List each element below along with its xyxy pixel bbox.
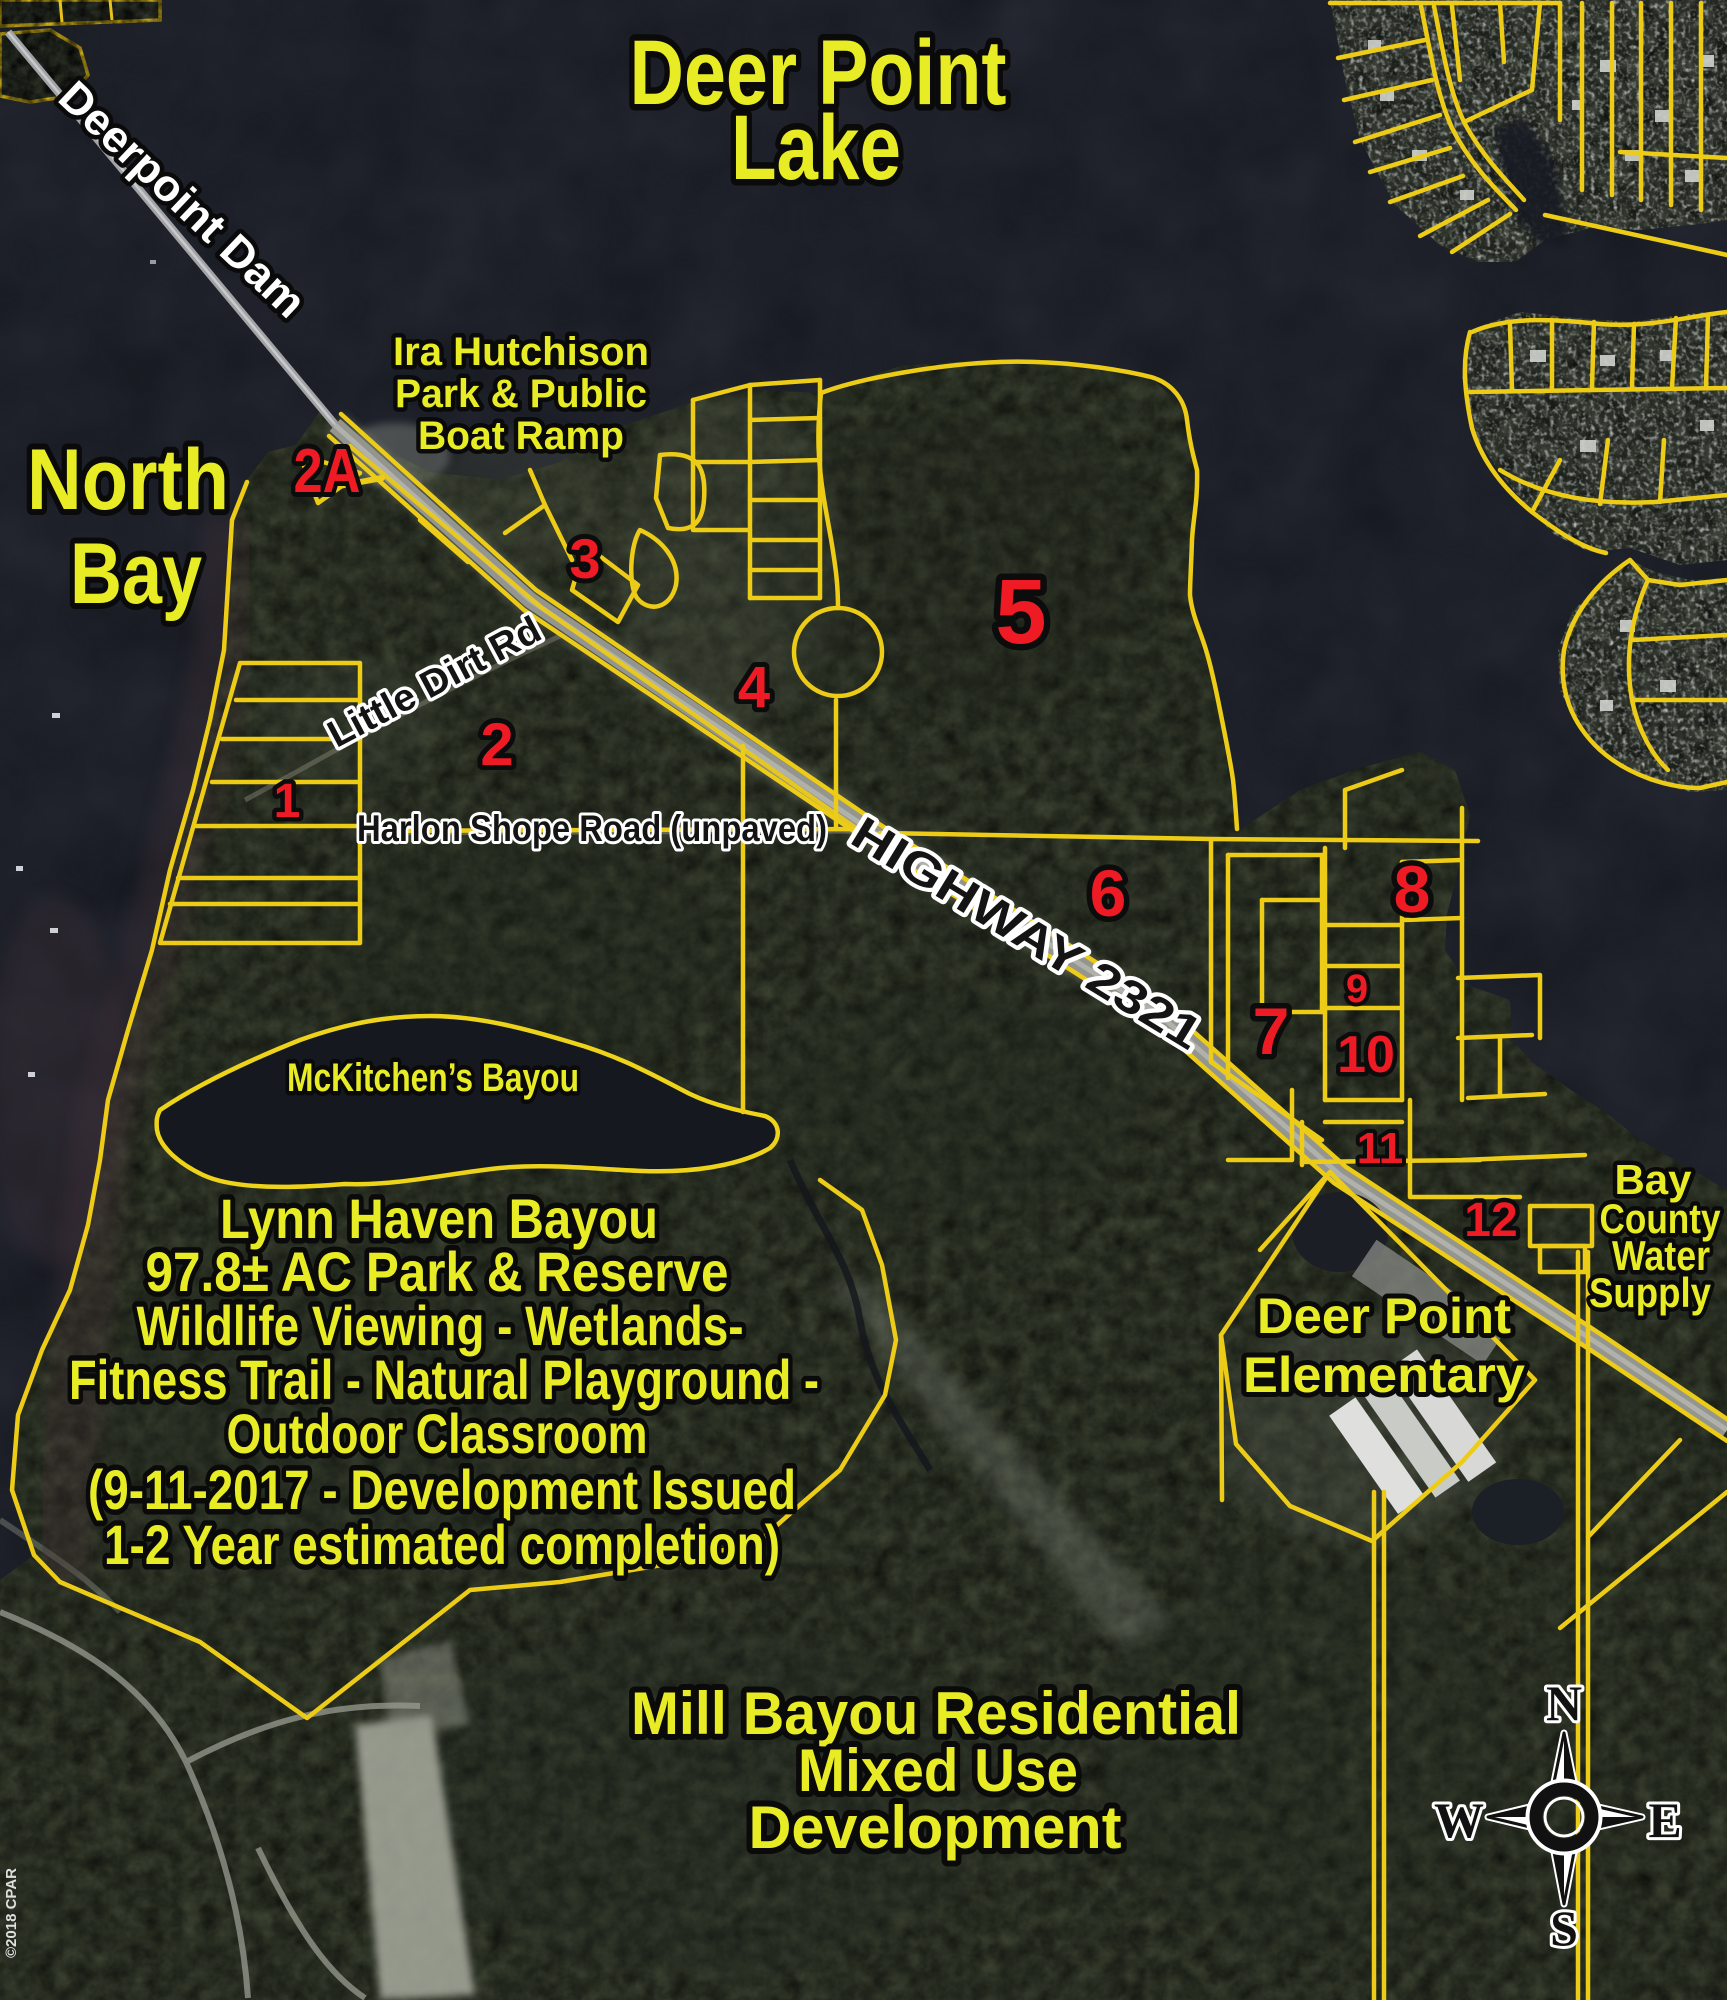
svg-text:McKitchen’s Bayou: McKitchen’s Bayou: [287, 1056, 579, 1100]
svg-text:Park & Public: Park & Public: [395, 372, 647, 416]
svg-text:Supply: Supply: [1589, 1269, 1712, 1316]
svg-text:1-2 Year estimated completion): 1-2 Year estimated completion): [104, 1513, 780, 1576]
svg-text:Outdoor Classroom: Outdoor Classroom: [227, 1402, 648, 1465]
svg-text:Elementary: Elementary: [1243, 1347, 1525, 1403]
svg-text:N: N: [1546, 1675, 1582, 1731]
svg-text:(9-11-2017 - Development Issue: (9-11-2017 - Development Issued: [88, 1458, 796, 1521]
svg-text:Bay: Bay: [70, 526, 202, 622]
svg-text:North: North: [27, 432, 229, 528]
svg-text:9: 9: [1346, 967, 1368, 1011]
svg-text:5: 5: [995, 561, 1046, 663]
svg-text:1: 1: [274, 775, 301, 828]
svg-text:©2018 CPAR: ©2018 CPAR: [3, 1868, 20, 1958]
svg-text:12: 12: [1464, 1194, 1517, 1247]
svg-text:W: W: [1434, 1792, 1484, 1848]
svg-text:Boat Ramp: Boat Ramp: [418, 414, 624, 458]
svg-text:Deer Point: Deer Point: [1257, 1288, 1511, 1344]
svg-text:3: 3: [569, 527, 600, 590]
svg-text:Ira Hutchison: Ira Hutchison: [393, 330, 649, 374]
svg-text:2A: 2A: [294, 437, 361, 506]
svg-text:Development: Development: [749, 1794, 1122, 1861]
svg-text:Harlon Shope Road (unpaved): Harlon Shope Road (unpaved): [357, 808, 827, 849]
svg-text:E: E: [1648, 1792, 1681, 1848]
svg-text:8: 8: [1394, 852, 1431, 926]
svg-text:11: 11: [1357, 1124, 1404, 1173]
svg-text:6: 6: [1090, 856, 1127, 930]
svg-text:10: 10: [1337, 1026, 1395, 1084]
svg-text:Lake: Lake: [731, 97, 901, 199]
svg-text:2: 2: [480, 711, 513, 778]
svg-text:4: 4: [738, 655, 770, 720]
svg-text:S: S: [1550, 1900, 1578, 1956]
svg-text:7: 7: [1253, 994, 1290, 1068]
